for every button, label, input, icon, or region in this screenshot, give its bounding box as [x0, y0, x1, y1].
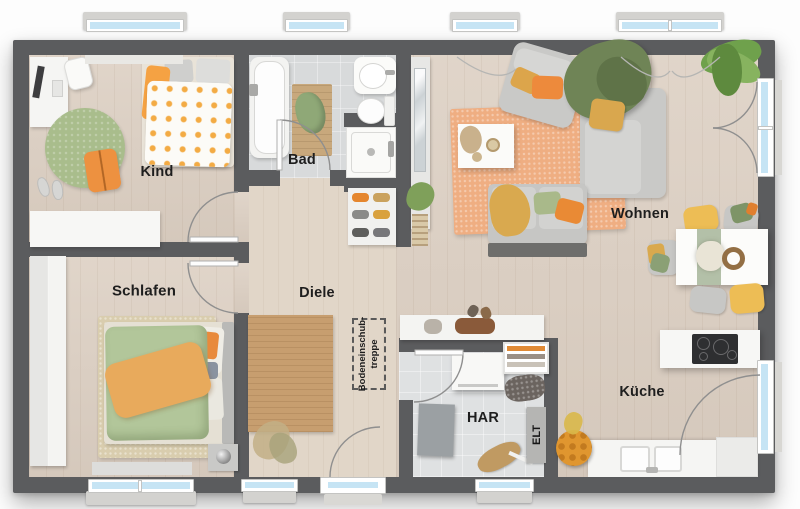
- washbasin-bowl: [359, 63, 387, 89]
- attic-stairs-line2: treppe: [369, 317, 381, 391]
- wohnen-door-outer-sill: [775, 80, 782, 175]
- wohnen-window2-mullion: [668, 20, 672, 31]
- elt-label: ELT: [531, 425, 543, 445]
- sink-faucet: [646, 467, 658, 473]
- storage-box: [417, 403, 455, 456]
- shoe-tan: [373, 193, 390, 202]
- mirror: [414, 68, 426, 172]
- burner-2: [699, 352, 708, 361]
- bench-decor: [424, 319, 442, 334]
- table-wreath: [722, 247, 745, 270]
- dining-chair-gray-bottom: [689, 285, 728, 315]
- diele-label: Diele: [299, 285, 335, 301]
- sink-basin-2: [654, 446, 682, 472]
- shoe-gray-1: [352, 210, 369, 219]
- wohnen-window1-glass: [456, 22, 514, 29]
- shoe-dark-1: [352, 228, 369, 237]
- entrance-step: [324, 494, 382, 505]
- wall-kind-bad: [234, 55, 249, 192]
- burner-1: [697, 337, 710, 350]
- diele-runner-rug: [248, 315, 333, 432]
- kind-sideboard: [30, 211, 160, 247]
- coffee-table-bowl: [486, 138, 500, 152]
- diele-window-glass: [245, 482, 294, 488]
- kind-floor-pillow: [83, 148, 122, 194]
- schlafen-window-mullion: [138, 480, 142, 492]
- drying-clothes-3: [507, 362, 545, 367]
- bench-tray: [455, 318, 495, 334]
- kueche-label: Küche: [619, 384, 664, 400]
- bad-window-glass: [289, 22, 344, 29]
- kind-window-glass: [90, 22, 180, 29]
- wall-wohnen-west: [396, 55, 411, 247]
- har-label: HAR: [467, 410, 499, 426]
- kueche-door-outer-sill: [775, 362, 782, 452]
- washbasin-faucet: [385, 70, 395, 75]
- schlafen-doorway-floor: [234, 263, 249, 313]
- wohnen-french-door-mullion: [758, 126, 773, 130]
- kind-label: Kind: [140, 164, 173, 180]
- kind-keyboard: [52, 80, 63, 97]
- schlafen-wardrobe: [30, 256, 66, 466]
- nightstand-lamp: [216, 449, 231, 464]
- kind-window-inner-sill: [85, 55, 183, 64]
- bathtub-faucet: [249, 84, 258, 96]
- attic-stairs-box: Bodeneinschub- treppe: [352, 318, 386, 390]
- washing-machine-slot: [458, 384, 498, 387]
- bathtub-inner: [254, 61, 285, 154]
- bad-label: Bad: [288, 152, 316, 168]
- bed-headboard: [222, 322, 234, 444]
- kitchen-tall-unit: [716, 437, 758, 477]
- wall-har-west: [399, 400, 413, 477]
- kind-duvet: [145, 81, 233, 168]
- shoe-dark-2: [373, 228, 390, 237]
- toilet-tank: [384, 96, 395, 126]
- schlafen-window-sill: [92, 462, 192, 475]
- shoe-mustard: [373, 210, 390, 219]
- loveseat-backrest: [488, 243, 587, 257]
- toilet-bowl: [357, 98, 385, 124]
- drying-clothes-1: [507, 346, 545, 351]
- burner-4: [727, 350, 737, 360]
- har-window-glass: [479, 482, 530, 488]
- schlafen-label: Schlafen: [112, 283, 176, 300]
- kueche-door-glass: [761, 364, 768, 450]
- coffee-table-dish: [472, 152, 482, 162]
- shower-drain: [367, 148, 375, 156]
- wall-bad-south-a: [248, 170, 280, 186]
- schlafen-window-housing: [86, 491, 196, 505]
- entrance-door-glass: [328, 482, 378, 488]
- dining-chair-yellow-bottom: [729, 283, 765, 315]
- shower-head: [388, 141, 394, 157]
- fruit-basket: [556, 430, 592, 466]
- wohnen-label: Wohnen: [611, 206, 669, 222]
- elt-panel: ELT: [527, 407, 546, 463]
- drying-clothes-2: [507, 354, 545, 359]
- table-flowers: [696, 241, 724, 271]
- wall-diele-pillar: [234, 242, 249, 263]
- floor-plan: Kind Bad Bodeneinschub- treppe Diele: [0, 0, 800, 509]
- shoe-orange: [352, 193, 369, 202]
- sideboard-books: [412, 214, 428, 246]
- kind-pillow-2: [195, 58, 230, 84]
- armchair-pillow-orange: [532, 75, 564, 99]
- kind-doorway-floor: [234, 192, 249, 242]
- attic-stairs-line1: Bodeneinschub-: [357, 317, 369, 391]
- chaise-pillow-mustard: [588, 98, 626, 132]
